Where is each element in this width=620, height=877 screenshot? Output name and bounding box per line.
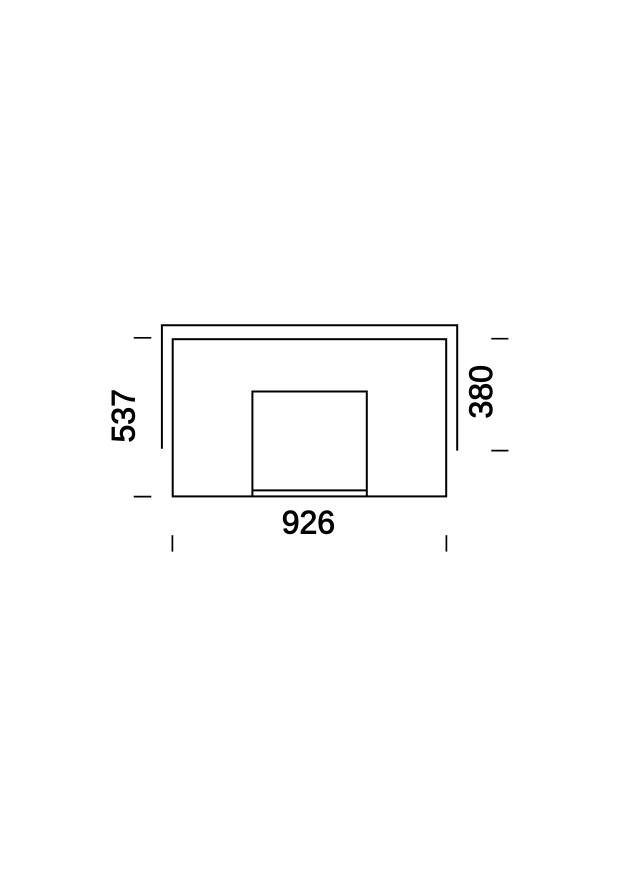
svg-text:537: 537 <box>105 389 141 442</box>
svg-text:380: 380 <box>463 365 499 418</box>
svg-text:926: 926 <box>282 505 335 541</box>
